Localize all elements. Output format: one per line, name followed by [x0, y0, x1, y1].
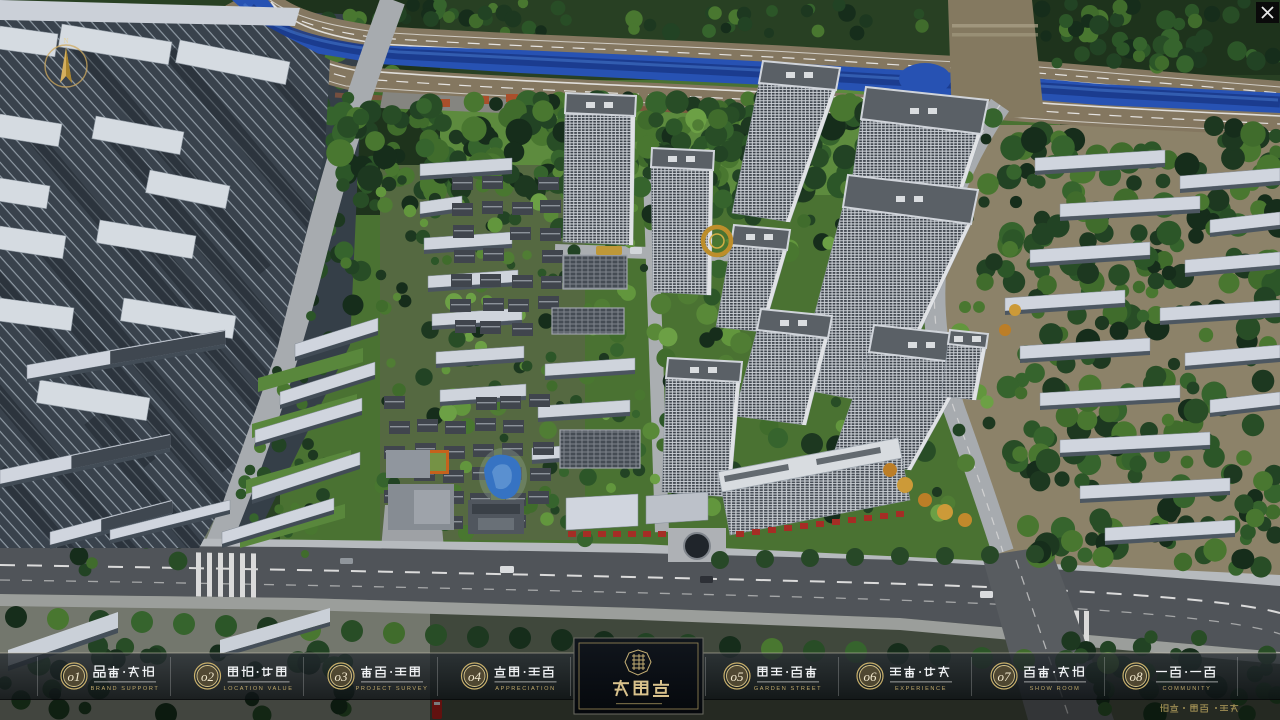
svg-text:APPRECIATION: APPRECIATION: [495, 686, 555, 692]
svg-text:PROJECT SURVEY: PROJECT SURVEY: [356, 686, 429, 692]
svg-text:N: N: [63, 37, 68, 45]
svg-text:o3: o3: [335, 669, 349, 684]
svg-text:o1: o1: [68, 669, 81, 684]
svg-text:o6: o6: [864, 669, 878, 684]
svg-text:SHOW ROOM: SHOW ROOM: [1030, 686, 1081, 692]
svg-text:BRAND SUPPORT: BRAND SUPPORT: [91, 686, 160, 692]
svg-text:o4: o4: [468, 669, 482, 684]
svg-text:o8: o8: [1130, 669, 1144, 684]
svg-text:o7: o7: [998, 669, 1012, 684]
svg-text:EXPERIENCE: EXPERIENCE: [895, 686, 947, 692]
svg-text:o2: o2: [201, 669, 215, 684]
svg-text:COMMUNITY: COMMUNITY: [1163, 686, 1212, 692]
svg-text:o5: o5: [731, 669, 745, 684]
svg-text:GARDEN STREET: GARDEN STREET: [754, 686, 822, 692]
svg-text:LOCATION VALUE: LOCATION VALUE: [223, 686, 293, 692]
